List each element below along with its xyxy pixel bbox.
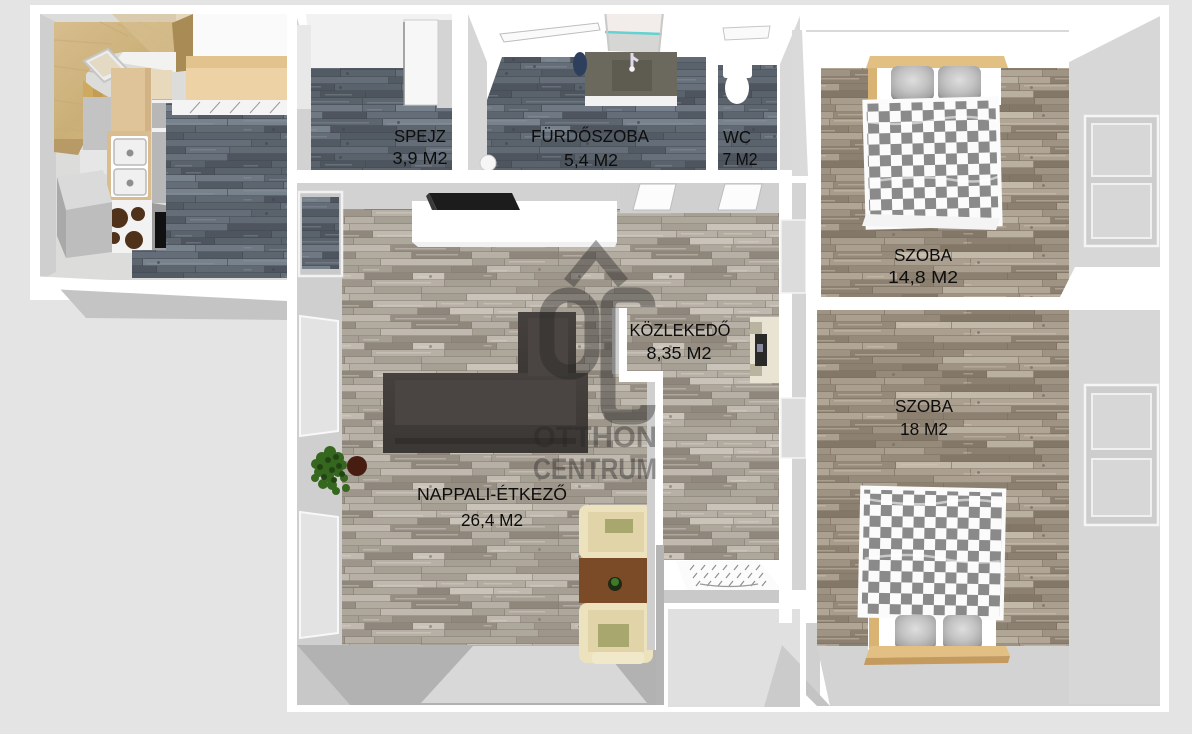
svg-text:NAPPALI-ÉTKEZŐ: NAPPALI-ÉTKEZŐ [417, 483, 567, 504]
svg-text:7 M2: 7 M2 [723, 149, 758, 169]
svg-text:WC: WC [723, 127, 751, 147]
svg-text:FÜRDŐSZOBA: FÜRDŐSZOBA [531, 125, 649, 146]
svg-text:5,4 M2: 5,4 M2 [564, 150, 618, 170]
svg-text:SPEJZ: SPEJZ [394, 126, 446, 146]
svg-text:14,8 M2: 14,8 M2 [888, 267, 958, 287]
svg-text:SZOBA: SZOBA [894, 245, 952, 265]
svg-text:KÖZLEKEDŐ: KÖZLEKEDŐ [630, 319, 731, 340]
svg-text:CENTRUM: CENTRUM [533, 453, 657, 486]
svg-text:18 M2: 18 M2 [900, 419, 948, 439]
svg-text:OTTHON: OTTHON [533, 421, 657, 454]
svg-text:26,4 M2: 26,4 M2 [461, 510, 523, 530]
svg-text:3,9 M2: 3,9 M2 [393, 148, 448, 168]
svg-text:SZOBA: SZOBA [895, 396, 953, 416]
svg-text:8,35 M2: 8,35 M2 [647, 343, 712, 363]
